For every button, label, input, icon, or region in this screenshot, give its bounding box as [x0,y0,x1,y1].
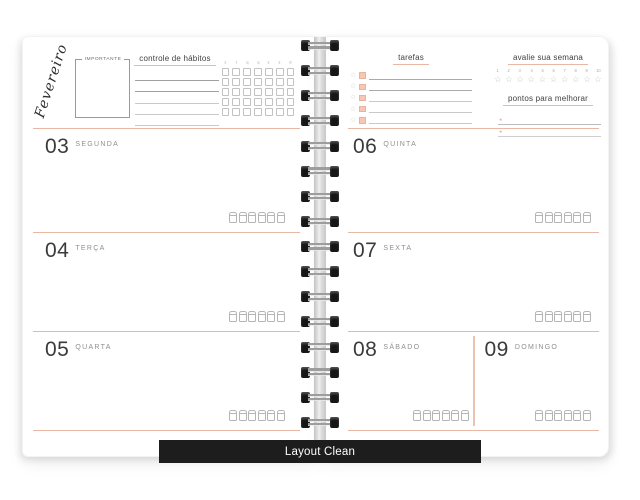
cup-icon [583,212,591,223]
habit-checkbox [232,88,240,96]
cup-icon [267,311,275,322]
important-box: IMPORTANTE [75,59,130,118]
habit-checkbox [243,78,251,86]
habit-checkbox [265,98,273,106]
star-icon [350,117,356,124]
habit-checkbox [232,108,240,116]
water-tracker [229,410,285,421]
left-page: Fevereiro IMPORTANTE controle de hábitos… [22,36,319,457]
rating-item-2: 2 [505,69,513,84]
day-section-terca: 04 TERÇA [33,232,300,331]
day-name: SEGUNDA [75,141,119,148]
ring-wire [308,368,332,370]
ring-wire [308,193,332,195]
day-section-weekend: 08 SÁBADO 09 DOMINGO [348,331,599,431]
habit-checkbox [287,88,295,96]
right-page: tarefas [321,36,609,457]
important-box-label: IMPORTANTE [82,57,124,62]
ring-wire [308,293,332,295]
product-label: Layout Clean [159,440,481,463]
habit-checkbox [265,88,273,96]
rating-number: 7 [564,70,566,73]
rating-number: 10 [596,70,601,73]
day-section-quinta: 06 QUINTA [348,128,599,232]
habit-checkbox [276,108,284,116]
writing-line [369,90,472,91]
habit-checkbox [232,78,240,86]
spiral-ring-icon [301,115,339,126]
habit-checkbox [287,108,295,116]
star-icon [350,83,356,90]
habit-checkbox [243,88,251,96]
task-checkbox [359,106,366,113]
cup-icon [583,410,591,421]
ring-wire [308,373,332,375]
cup-icon [573,311,581,322]
ring-wire [308,419,332,421]
week-review-block: avalie sua semana 1 2 3 4 5 6 7 8 9 10 [492,53,604,84]
rating-number: 8 [575,70,577,73]
habit-checkbox [222,78,230,86]
star-icon [350,106,356,113]
habit-writing-lines [135,70,219,126]
spiral-ring-icon [301,266,339,277]
day-number: 07 [353,240,377,261]
cup-icon [277,212,285,223]
ring-wire [308,142,332,144]
cup-icon [451,410,459,421]
day-name: DOMINGO [515,344,558,351]
cup-icon [461,410,469,421]
day-name: QUARTA [75,344,111,351]
habit-checkbox [254,98,262,106]
habit-checkbox [287,68,295,76]
improve-title-text: pontos para melhorar [503,94,593,106]
task-row [350,81,472,92]
star-icon [594,75,602,84]
rating-item-8: 8 [572,69,580,84]
habit-checkbox [254,78,262,86]
day-head: 09 DOMINGO [475,332,600,360]
ring-wire [308,122,332,124]
spiral-ring-icon [301,417,339,428]
writing-line [369,79,472,80]
habit-checkbox [287,98,295,106]
rating-item-9: 9 [583,69,591,84]
cup-icon [239,410,247,421]
day-section-quarta: 05 QUARTA [33,331,300,431]
star-icon [539,75,547,84]
water-tracker [535,212,591,223]
task-row [350,104,472,115]
day-section-sexta: 07 SEXTA [348,232,599,331]
star-icon [572,75,580,84]
habit-grid-cells [220,68,296,116]
task-row [350,115,472,126]
cup-icon [545,311,553,322]
water-tracker [229,311,285,322]
cup-icon [583,311,591,322]
star-icon [516,75,524,84]
cup-icon [239,212,247,223]
star-icon [505,75,513,84]
cup-icon [248,410,256,421]
habit-grid-day-headers: s t q q s s d [220,60,296,66]
day-head: 06 QUINTA [348,129,599,157]
star-icon [527,75,535,84]
habit-tracker-title: controle de hábitos [127,54,223,66]
spiral-ring-icon [301,367,339,378]
spiral-ring-icon [301,216,339,227]
day-name: TERÇA [75,245,105,252]
day-section-sabado: 08 SÁBADO [348,332,473,430]
day-head: 04 TERÇA [33,233,300,261]
writing-line [135,115,219,126]
cup-icon [248,311,256,322]
habit-checkbox [276,78,284,86]
ring-wire [308,268,332,270]
habit-checkbox [276,98,284,106]
day-number: 03 [45,136,69,157]
day-number: 06 [353,136,377,157]
writing-line [135,92,219,103]
habit-checkbox [254,108,262,116]
ring-wire [308,167,332,169]
week-review-title: avalie sua semana [492,53,604,65]
ring-wire [308,318,332,320]
cup-icon [442,410,450,421]
cup-icon [432,410,440,421]
habit-checkbox [222,108,230,116]
cup-icon [229,311,237,322]
cup-icon [413,410,421,421]
improve-line [498,113,601,125]
ring-wire [308,147,332,149]
spiral-ring-icon [301,291,339,302]
day-section-segunda: 03 SEGUNDA [33,128,300,232]
rating-item-6: 6 [550,69,558,84]
cup-icon [573,410,581,421]
rating-number: 3 [519,70,521,73]
day-head: 05 QUARTA [33,332,300,360]
spiral-ring-icon [301,40,339,51]
right-page-header: tarefas [322,37,608,128]
star-icon [350,94,356,101]
ring-wire [308,172,332,174]
writing-line [369,123,472,124]
ring-wire [308,117,332,119]
writing-line [135,81,219,92]
cup-icon [267,212,275,223]
ring-wire [308,423,332,425]
cup-icon [564,212,572,223]
ring-wire [308,42,332,44]
habit-checkbox [265,68,273,76]
day-head: 08 SÁBADO [348,332,473,360]
habit-grid: s t q q s s d [220,60,296,116]
ring-wire [308,72,332,74]
habit-checkbox [254,88,262,96]
ring-wire [308,67,332,69]
habit-checkbox [232,98,240,106]
cup-icon [258,410,266,421]
habit-tracker-title-text: controle de hábitos [134,54,215,66]
rating-scale: 1 2 3 4 5 6 7 8 9 10 [492,69,604,84]
left-page-header: Fevereiro IMPORTANTE controle de hábitos… [23,37,318,128]
rating-item-7: 7 [561,69,569,84]
task-checkbox [359,117,366,124]
day-number: 05 [45,339,69,360]
habit-checkbox [276,68,284,76]
rating-number: 9 [586,70,588,73]
day-header: q [244,61,251,65]
month-label: Fevereiro [32,42,71,120]
day-header: s [276,61,283,65]
habit-checkbox [287,78,295,86]
ring-wire [308,243,332,245]
writing-line [369,112,472,113]
writing-line [135,104,219,115]
star-icon [494,75,502,84]
day-name: SÁBADO [383,344,420,351]
spiral-ring-icon [301,316,339,327]
habit-checkbox [222,98,230,106]
cup-icon [554,311,562,322]
habit-checkbox [254,68,262,76]
star-icon [561,75,569,84]
habit-checkbox [265,108,273,116]
spiral-ring-icon [301,166,339,177]
star-icon [583,75,591,84]
cup-icon [258,212,266,223]
day-name: QUINTA [383,141,417,148]
day-number: 04 [45,240,69,261]
star-bullet-icon [499,118,503,123]
spiral-ring-icon [301,392,339,403]
cup-icon [554,212,562,223]
rating-number: 2 [508,70,510,73]
writing-line [135,70,219,81]
spiral-ring-icon [301,241,339,252]
cup-icon [229,212,237,223]
star-icon [350,72,356,79]
day-header: s [222,61,229,65]
ring-wire [308,218,332,220]
tasks-block: tarefas [350,53,472,126]
tasks-title-text: tarefas [393,53,429,65]
spiral-binding [301,40,339,453]
ring-wire [308,298,332,300]
ring-wire [308,92,332,94]
water-tracker [413,410,469,421]
cup-icon [535,410,543,421]
cup-icon [239,311,247,322]
day-head: 03 SEGUNDA [33,129,300,157]
day-header: s [265,61,272,65]
rating-item-10: 10 [594,69,602,84]
task-checkbox [359,72,366,79]
day-header: t [233,61,240,65]
day-section-domingo: 09 DOMINGO [475,332,600,430]
cup-icon [554,410,562,421]
rating-number: 4 [530,70,532,73]
improve-title: pontos para melhorar [492,94,604,106]
ring-wire [308,222,332,224]
cup-icon [277,311,285,322]
habit-checkbox [276,88,284,96]
habit-checkbox [265,78,273,86]
day-number: 09 [485,339,509,360]
ring-wire [308,398,332,400]
rating-item-5: 5 [539,69,547,84]
cup-icon [573,212,581,223]
cup-icon [535,212,543,223]
habit-checkbox [222,88,230,96]
ring-wire [308,247,332,249]
star-icon [550,75,558,84]
ring-wire [308,343,332,345]
spiral-ring-icon [301,65,339,76]
cup-icon [564,410,572,421]
day-header: d [287,61,294,65]
ring-wire [308,46,332,48]
product-label-text: Layout Clean [285,446,355,458]
task-list [350,70,472,126]
rating-item-1: 1 [494,69,502,84]
week-review-title-text: avalie sua semana [508,53,588,65]
spiral-ring-icon [301,90,339,101]
day-number: 08 [353,339,377,360]
rating-item-4: 4 [527,69,535,84]
rating-number: 6 [552,70,554,73]
cup-icon [229,410,237,421]
cup-icon [248,212,256,223]
habit-checkbox [243,68,251,76]
spiral-ring-icon [301,191,339,202]
task-checkbox [359,84,366,91]
task-row [350,92,472,103]
spiral-ring-icon [301,141,339,152]
cup-icon [258,311,266,322]
water-tracker [535,311,591,322]
planner-spread-photo: Fevereiro IMPORTANTE controle de hábitos… [0,0,640,500]
habit-checkbox [232,68,240,76]
ring-wire [308,323,332,325]
writing-line [369,101,472,102]
cup-icon [545,212,553,223]
cup-icon [545,410,553,421]
spiral-ring-icon [301,342,339,353]
rating-number: 5 [541,70,543,73]
rating-number: 1 [497,70,499,73]
day-header: q [255,61,262,65]
water-tracker [535,410,591,421]
day-name: SEXTA [383,245,412,252]
ring-wire [308,97,332,99]
ring-wire [308,394,332,396]
habit-checkbox [222,68,230,76]
cup-icon [423,410,431,421]
ring-wire [308,197,332,199]
habit-checkbox [243,98,251,106]
task-checkbox [359,95,366,102]
cup-icon [277,410,285,421]
water-tracker [229,212,285,223]
cup-icon [535,311,543,322]
cup-icon [267,410,275,421]
cup-icon [564,311,572,322]
tasks-title: tarefas [350,53,472,65]
task-row [350,70,472,81]
day-head: 07 SEXTA [348,233,599,261]
ring-wire [308,348,332,350]
ring-wire [308,273,332,275]
rating-item-3: 3 [516,69,524,84]
habit-checkbox [243,108,251,116]
